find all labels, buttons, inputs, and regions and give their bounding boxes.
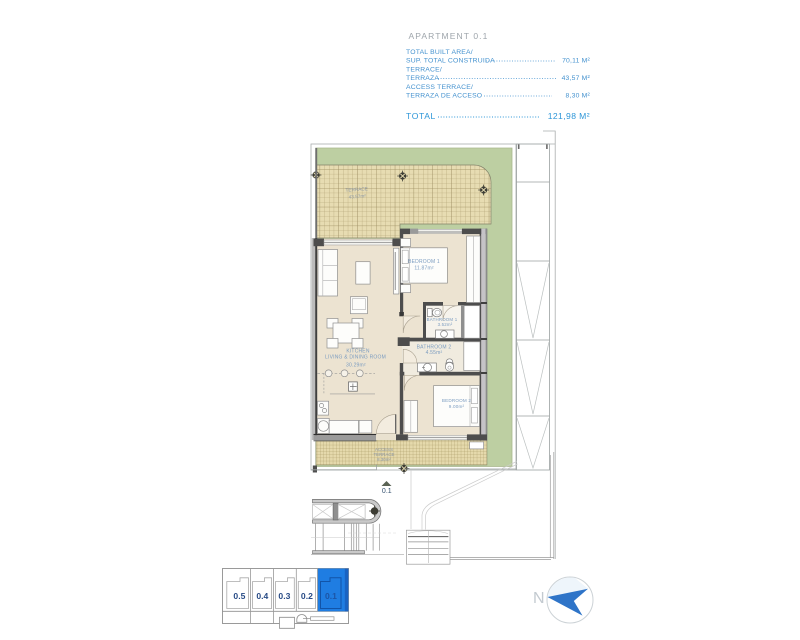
svg-text:TOTAL: TOTAL (406, 111, 436, 121)
svg-text:BEDROOM 1: BEDROOM 1 (408, 259, 440, 265)
svg-text:0.1: 0.1 (325, 591, 337, 601)
svg-text:0.4: 0.4 (256, 591, 268, 601)
svg-text:BATHROOM 1: BATHROOM 1 (427, 317, 458, 322)
svg-text:4.55m²: 4.55m² (426, 350, 443, 356)
svg-text:43,57 M²: 43,57 M² (562, 75, 591, 82)
svg-text:0.3: 0.3 (278, 591, 290, 601)
svg-text:N: N (533, 590, 545, 607)
svg-text:APARTMENT 0.1: APARTMENT 0.1 (409, 31, 489, 41)
svg-text:SUP. TOTAL CONSTRUIDA: SUP. TOTAL CONSTRUIDA (406, 58, 495, 65)
svg-text:8.30m²: 8.30m² (377, 457, 391, 462)
svg-text:11.87m²: 11.87m² (414, 266, 434, 272)
svg-text:TOTAL BUILT AREA/: TOTAL BUILT AREA/ (406, 49, 473, 56)
svg-text:8,30 M²: 8,30 M² (566, 93, 591, 100)
svg-text:TERRACE/: TERRACE/ (406, 67, 442, 74)
svg-text:0.1: 0.1 (382, 488, 392, 495)
svg-text:TERRAZA: TERRAZA (406, 75, 439, 82)
svg-text:121,98 M²: 121,98 M² (548, 111, 590, 121)
svg-text:0.2: 0.2 (301, 591, 313, 601)
svg-text:9.00m²: 9.00m² (449, 404, 465, 409)
svg-text:ACCESS TERRACE/: ACCESS TERRACE/ (406, 84, 473, 91)
svg-text:0.5: 0.5 (233, 591, 245, 601)
svg-text:LIVING & DINING ROOM: LIVING & DINING ROOM (325, 355, 386, 361)
svg-text:70,11 M²: 70,11 M² (562, 58, 590, 65)
svg-text:TERRAZA DE ACCESO: TERRAZA DE ACCESO (406, 93, 482, 100)
svg-text:BEDROOM 2: BEDROOM 2 (442, 398, 472, 403)
svg-text:3.52m²: 3.52m² (438, 322, 453, 327)
svg-text:30.29m²: 30.29m² (346, 363, 366, 369)
